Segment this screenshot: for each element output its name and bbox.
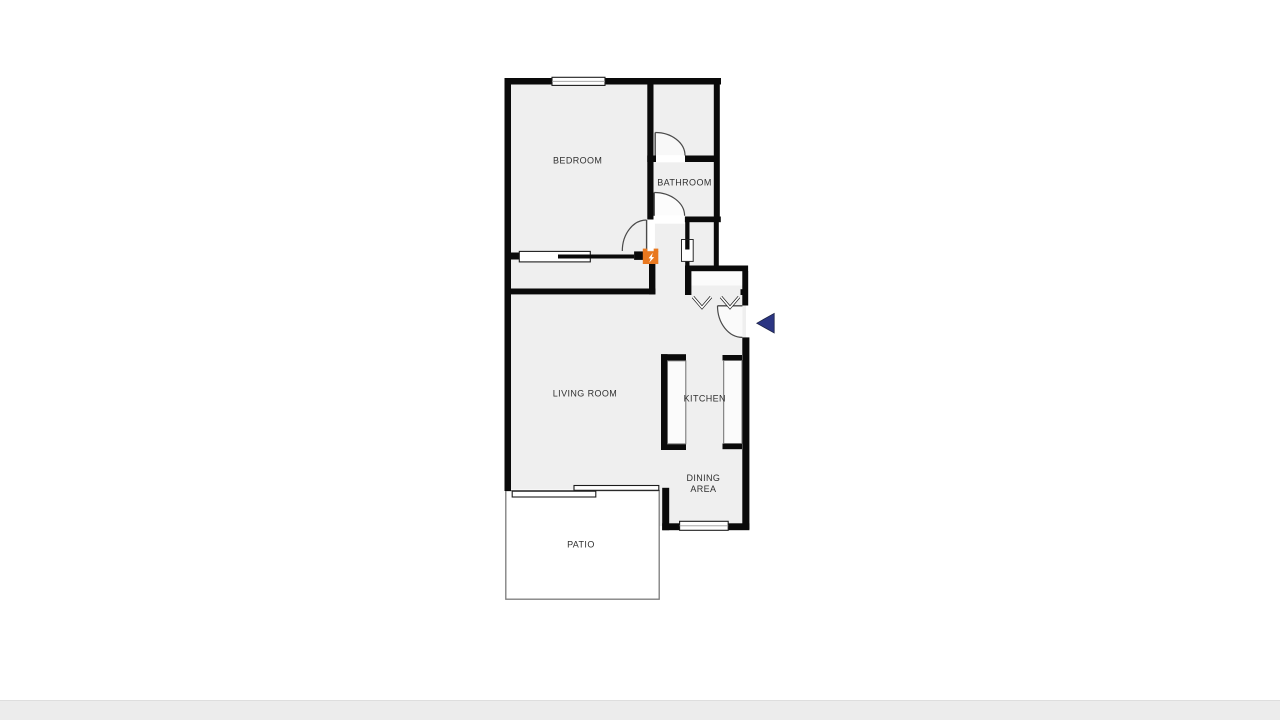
svg-text:KITCHEN: KITCHEN — [684, 394, 726, 404]
svg-text:BEDROOM: BEDROOM — [553, 156, 602, 166]
svg-text:DINING: DINING — [686, 473, 720, 483]
svg-text:AREA: AREA — [690, 484, 716, 494]
svg-text:LIVING ROOM: LIVING ROOM — [553, 389, 617, 399]
svg-text:BATHROOM: BATHROOM — [657, 177, 712, 187]
svg-text:PATIO: PATIO — [567, 539, 595, 549]
